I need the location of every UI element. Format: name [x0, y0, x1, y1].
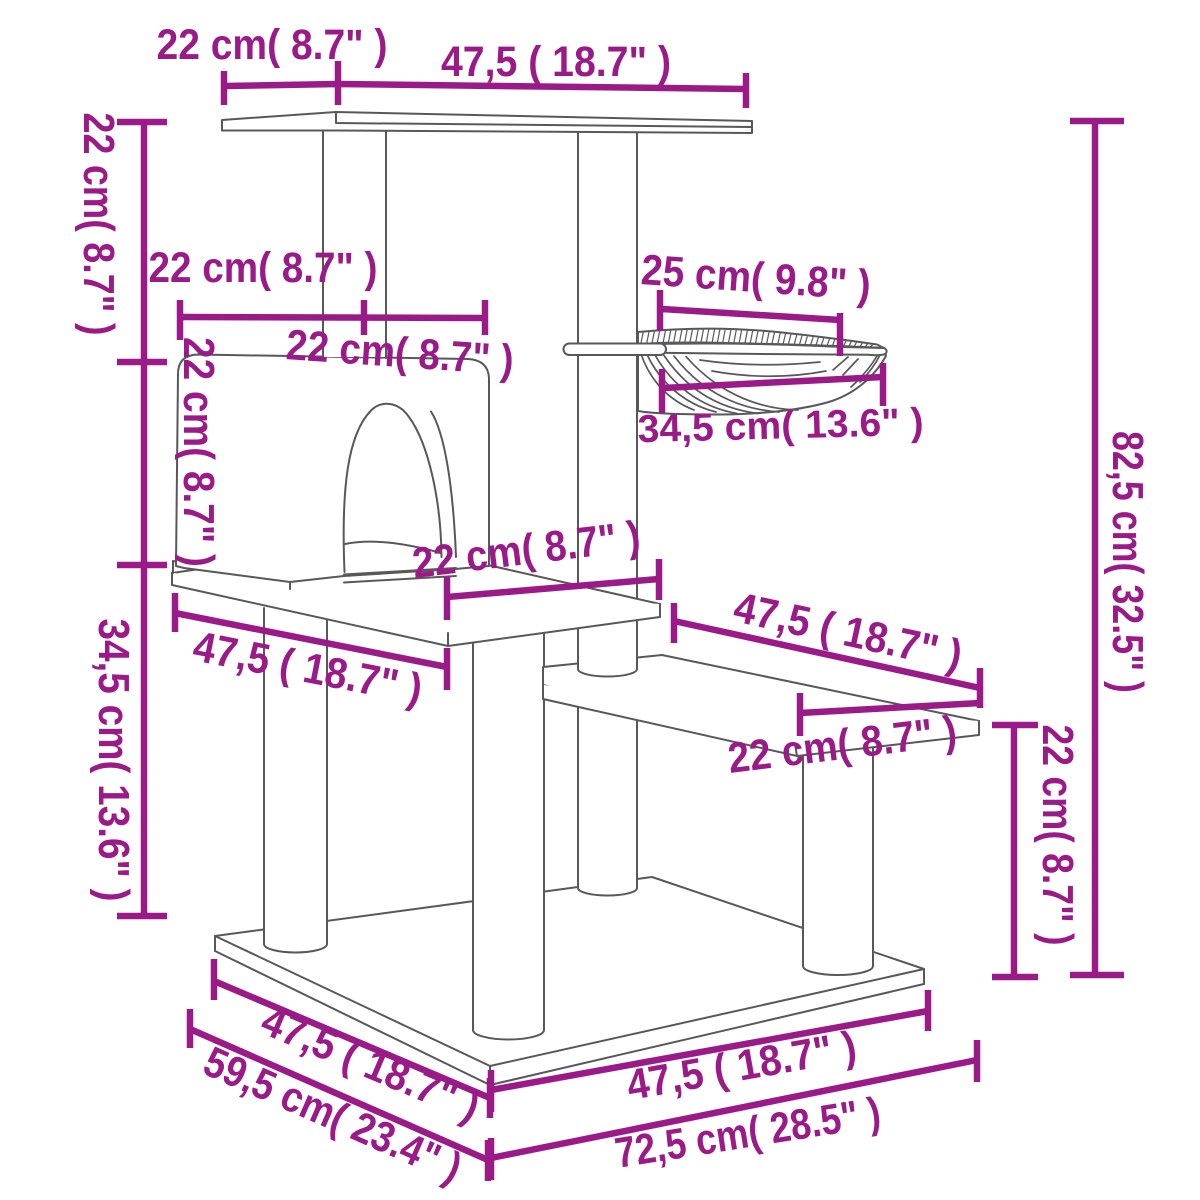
svg-text:22 cm( 8.7" ): 22 cm( 8.7" )	[174, 337, 223, 567]
svg-text:34,5 cm( 13.6" ): 34,5 cm( 13.6" )	[89, 619, 138, 902]
svg-text:22 cm( 8.7" ): 22 cm( 8.7" )	[1033, 725, 1082, 946]
svg-text:34,5 cm( 13.6" ): 34,5 cm( 13.6" )	[637, 401, 924, 451]
svg-text:22 cm( 8.7" ): 22 cm( 8.7" )	[149, 244, 378, 292]
svg-text:47,5 ( 18.7" ): 47,5 ( 18.7" )	[441, 38, 671, 86]
svg-text:22 cm( 8.7" ): 22 cm( 8.7" )	[157, 21, 388, 69]
svg-text:22 cm( 8.7" ): 22 cm( 8.7" )	[74, 113, 123, 336]
svg-text:82,5 cm( 32.5" ): 82,5 cm( 32.5" )	[1103, 431, 1152, 693]
